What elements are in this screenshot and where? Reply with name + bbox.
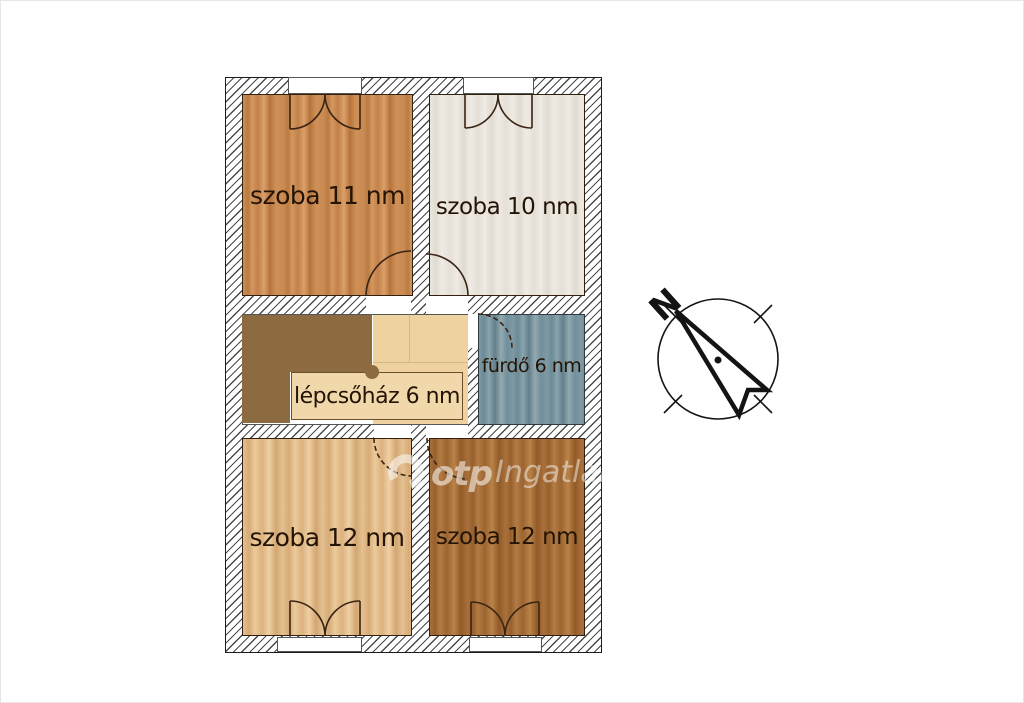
room-szoba-10: szoba 10 nm: [429, 94, 585, 296]
window-szoba-12-right: [469, 637, 542, 652]
tile-joint-horizontal: [373, 362, 468, 363]
window-szoba-11: [288, 77, 362, 94]
compass-north-icon: N: [642, 281, 778, 419]
room-szoba-12-left: szoba 12 nm: [242, 438, 412, 636]
north-arrow: [676, 311, 767, 415]
room-label-szoba-12-left: szoba 12 nm: [243, 439, 411, 635]
room-label-szoba-12-right: szoba 12 nm: [430, 439, 584, 635]
room-furdo: fürdő 6 nm: [478, 314, 585, 425]
door-opening-szoba-10: [426, 296, 468, 314]
room-label-szoba-10: szoba 10 nm: [430, 107, 584, 307]
tile-joint-vertical: [409, 315, 410, 362]
room-label-lepcsohaz: lépcsőház 6 nm: [294, 384, 460, 409]
door-opening-szoba-12-left: [374, 425, 411, 438]
stair-corner-post: [365, 365, 379, 379]
compass-circle: [658, 299, 778, 419]
bathroom-door-opening: [468, 314, 478, 348]
stairwell-block-lower: [242, 372, 290, 423]
room-szoba-11: szoba 11 nm: [242, 94, 413, 296]
stairwell-block-upper: [242, 315, 372, 372]
compass-center-dot: [715, 357, 722, 364]
room-label-furdo: fürdő 6 nm: [479, 351, 584, 381]
stair-label-plate: lépcsőház 6 nm: [291, 372, 463, 420]
compass-ticks: [664, 305, 772, 413]
room-label-szoba-11: szoba 11 nm: [243, 95, 412, 295]
floor-plan-image: szoba 11 nm szoba 10 nm fürdő 6 nm lépcs…: [0, 0, 1024, 703]
window-szoba-10: [463, 77, 534, 94]
room-szoba-12-right: szoba 12 nm: [429, 438, 585, 636]
window-szoba-12-left: [277, 637, 362, 652]
compass-north-label: N: [642, 281, 690, 330]
door-opening-szoba-11: [366, 296, 411, 314]
door-opening-szoba-12-right: [426, 425, 468, 438]
